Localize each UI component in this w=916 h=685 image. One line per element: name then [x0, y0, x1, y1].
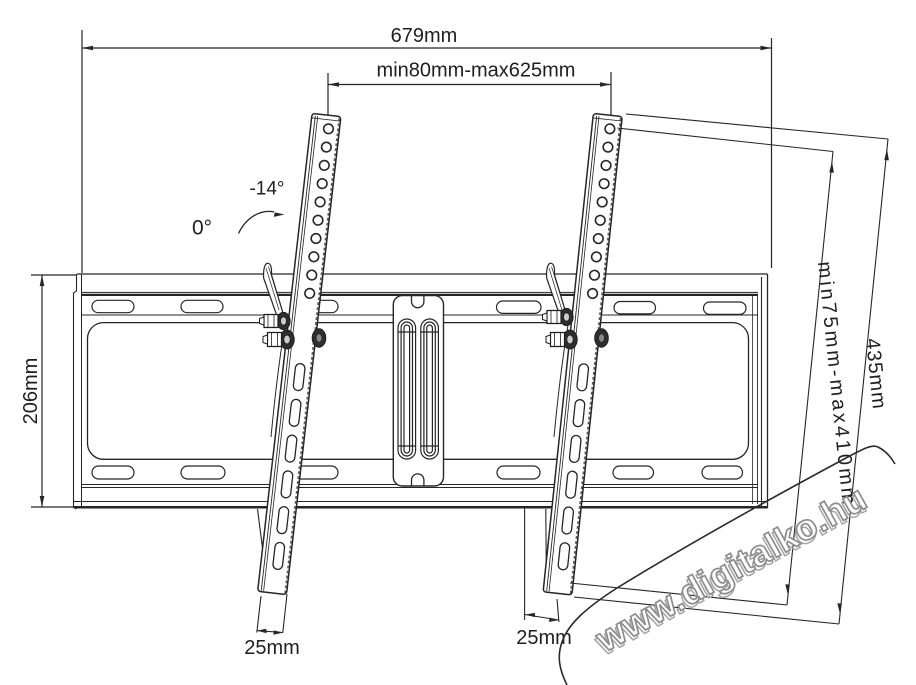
svg-text:25mm: 25mm: [244, 637, 300, 659]
svg-text:0°: 0°: [192, 217, 212, 240]
svg-text:min80mm-max625mm: min80mm-max625mm: [377, 60, 576, 82]
svg-text:-14°: -14°: [249, 179, 284, 200]
svg-text:679mm: 679mm: [391, 25, 458, 47]
svg-text:206mm: 206mm: [20, 358, 42, 425]
